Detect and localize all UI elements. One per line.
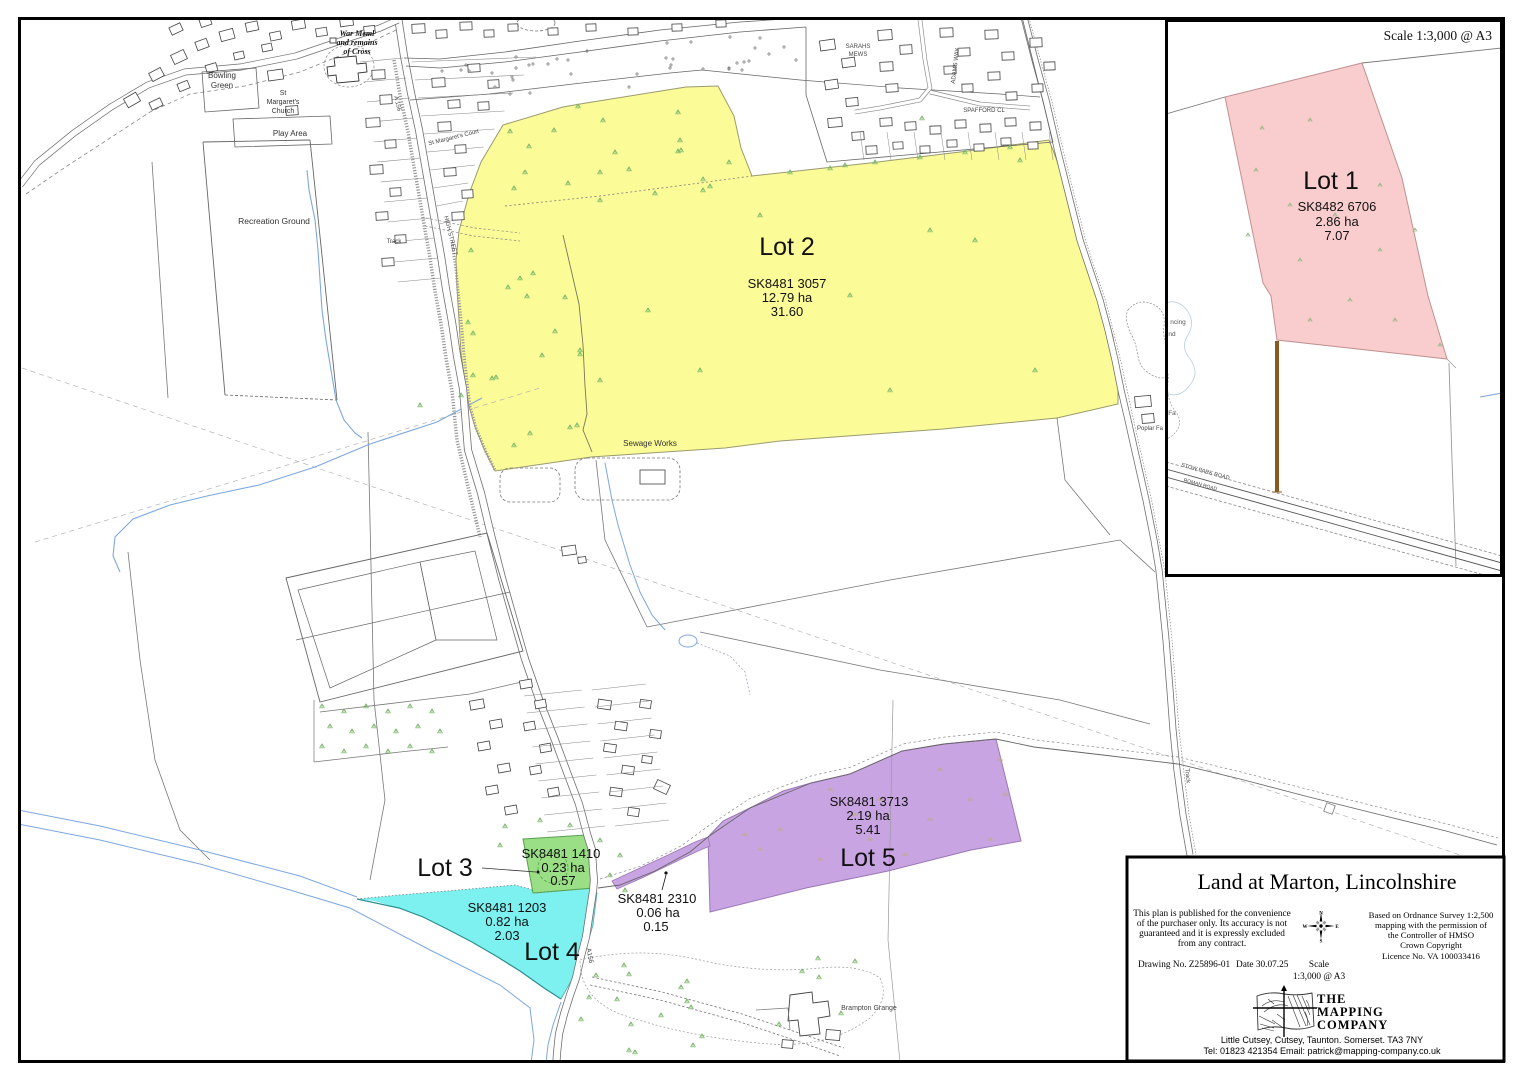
svg-text:War Meml: War Meml: [340, 29, 376, 38]
svg-text:ncing: ncing: [1170, 319, 1186, 326]
svg-text:Little Cutsey, Cutsey, Taunton: Little Cutsey, Cutsey, Taunton. Somerset…: [1221, 1035, 1423, 1045]
svg-text:W: W: [1303, 925, 1308, 930]
svg-text:Scale 1:3,000 @ A3: Scale 1:3,000 @ A3: [1384, 28, 1493, 43]
svg-text:31.60: 31.60: [771, 304, 804, 319]
svg-text:2.86 ha: 2.86 ha: [1315, 214, 1359, 229]
svg-text:MEWS: MEWS: [849, 52, 868, 58]
svg-text:Date 30.07.25: Date 30.07.25: [1236, 960, 1289, 970]
svg-text:1:3,000 @ A3: 1:3,000 @ A3: [1293, 972, 1346, 982]
svg-text:Bowling: Bowling: [208, 71, 236, 80]
svg-text:MAPPING: MAPPING: [1317, 1005, 1384, 1019]
svg-text:SPAFFORD CL: SPAFFORD CL: [963, 108, 1005, 114]
svg-text:Recreation Ground: Recreation Ground: [238, 216, 310, 226]
svg-text:Lot 2: Lot 2: [759, 233, 815, 261]
svg-text:Tel: 01823 421354 Email: patri: Tel: 01823 421354 Email: patrick@mapping…: [1203, 1046, 1441, 1056]
svg-text:THE: THE: [1317, 992, 1346, 1006]
svg-text:SK8481 2310: SK8481 2310: [618, 891, 697, 906]
svg-text:Crown Copyright: Crown Copyright: [1400, 940, 1462, 950]
svg-text:Drawing No. Z25896-01: Drawing No. Z25896-01: [1138, 960, 1231, 970]
svg-text:St: St: [280, 90, 287, 97]
svg-text:Church: Church: [272, 108, 295, 115]
svg-text:5.41: 5.41: [855, 822, 880, 837]
svg-text:Lot 4: Lot 4: [524, 938, 580, 966]
svg-text:SK8481 1203: SK8481 1203: [468, 900, 547, 915]
svg-text:COMPANY: COMPANY: [1317, 1018, 1388, 1032]
svg-text:12.79 ha: 12.79 ha: [762, 290, 813, 305]
svg-text:Scale: Scale: [1309, 960, 1329, 970]
svg-text:0.57: 0.57: [550, 873, 575, 888]
svg-text:Land at Marton, Lincolnshire: Land at Marton, Lincolnshire: [1197, 869, 1456, 894]
svg-text:guaranteed and it is expressly: guaranteed and it is expressly excluded: [1139, 929, 1285, 939]
svg-text:SARAHS: SARAHS: [846, 44, 871, 50]
svg-text:Sewage Works: Sewage Works: [623, 439, 677, 448]
svg-text:N: N: [1319, 912, 1323, 917]
svg-text:SK8481 1410: SK8481 1410: [522, 846, 601, 861]
svg-text:of Cross: of Cross: [343, 47, 370, 56]
svg-text:Brampton Grange: Brampton Grange: [841, 1005, 897, 1012]
svg-text:Based on Ordnance Survey 1:2,5: Based on Ordnance Survey 1:2,500: [1369, 910, 1494, 920]
svg-text:S: S: [1320, 940, 1323, 945]
svg-text:Lot 5: Lot 5: [840, 844, 896, 872]
svg-text:Poplar Fa: Poplar Fa: [1137, 426, 1164, 432]
svg-text:2.03: 2.03: [494, 928, 519, 943]
svg-text:Licence No. VA 100033416: Licence No. VA 100033416: [1382, 951, 1480, 961]
svg-text:Lot 1: Lot 1: [1303, 167, 1359, 195]
svg-text:0.82 ha: 0.82 ha: [485, 914, 529, 929]
svg-text:Track: Track: [387, 239, 403, 245]
svg-text:mapping with the permission of: mapping with the permission of: [1375, 920, 1487, 930]
svg-text:nd: nd: [1168, 331, 1176, 338]
svg-text:Green: Green: [211, 81, 233, 90]
svg-text:Lot 3: Lot 3: [417, 854, 473, 882]
svg-text:SK8481 3713: SK8481 3713: [830, 794, 909, 809]
svg-text:0.15: 0.15: [643, 919, 668, 934]
svg-text:and remains: and remains: [336, 38, 377, 47]
svg-text:7.07: 7.07: [1324, 228, 1349, 243]
svg-text:SK8481 3057: SK8481 3057: [748, 276, 827, 291]
svg-text:0.06 ha: 0.06 ha: [636, 905, 680, 920]
svg-text:Play Area: Play Area: [273, 129, 308, 138]
svg-text:SK8482 6706: SK8482 6706: [1298, 199, 1377, 214]
svg-text:of the purchaser only. Its acc: of the purchaser only. Its accuracy is n…: [1137, 918, 1288, 929]
svg-text:This plan is published for the: This plan is published for the convenien…: [1133, 908, 1291, 919]
svg-text:Margaret's: Margaret's: [267, 99, 300, 106]
svg-text:the Controller of HMSO: the Controller of HMSO: [1388, 930, 1474, 940]
svg-text:from any contract.: from any contract.: [1178, 938, 1246, 949]
svg-text:2.19 ha: 2.19 ha: [846, 808, 890, 823]
